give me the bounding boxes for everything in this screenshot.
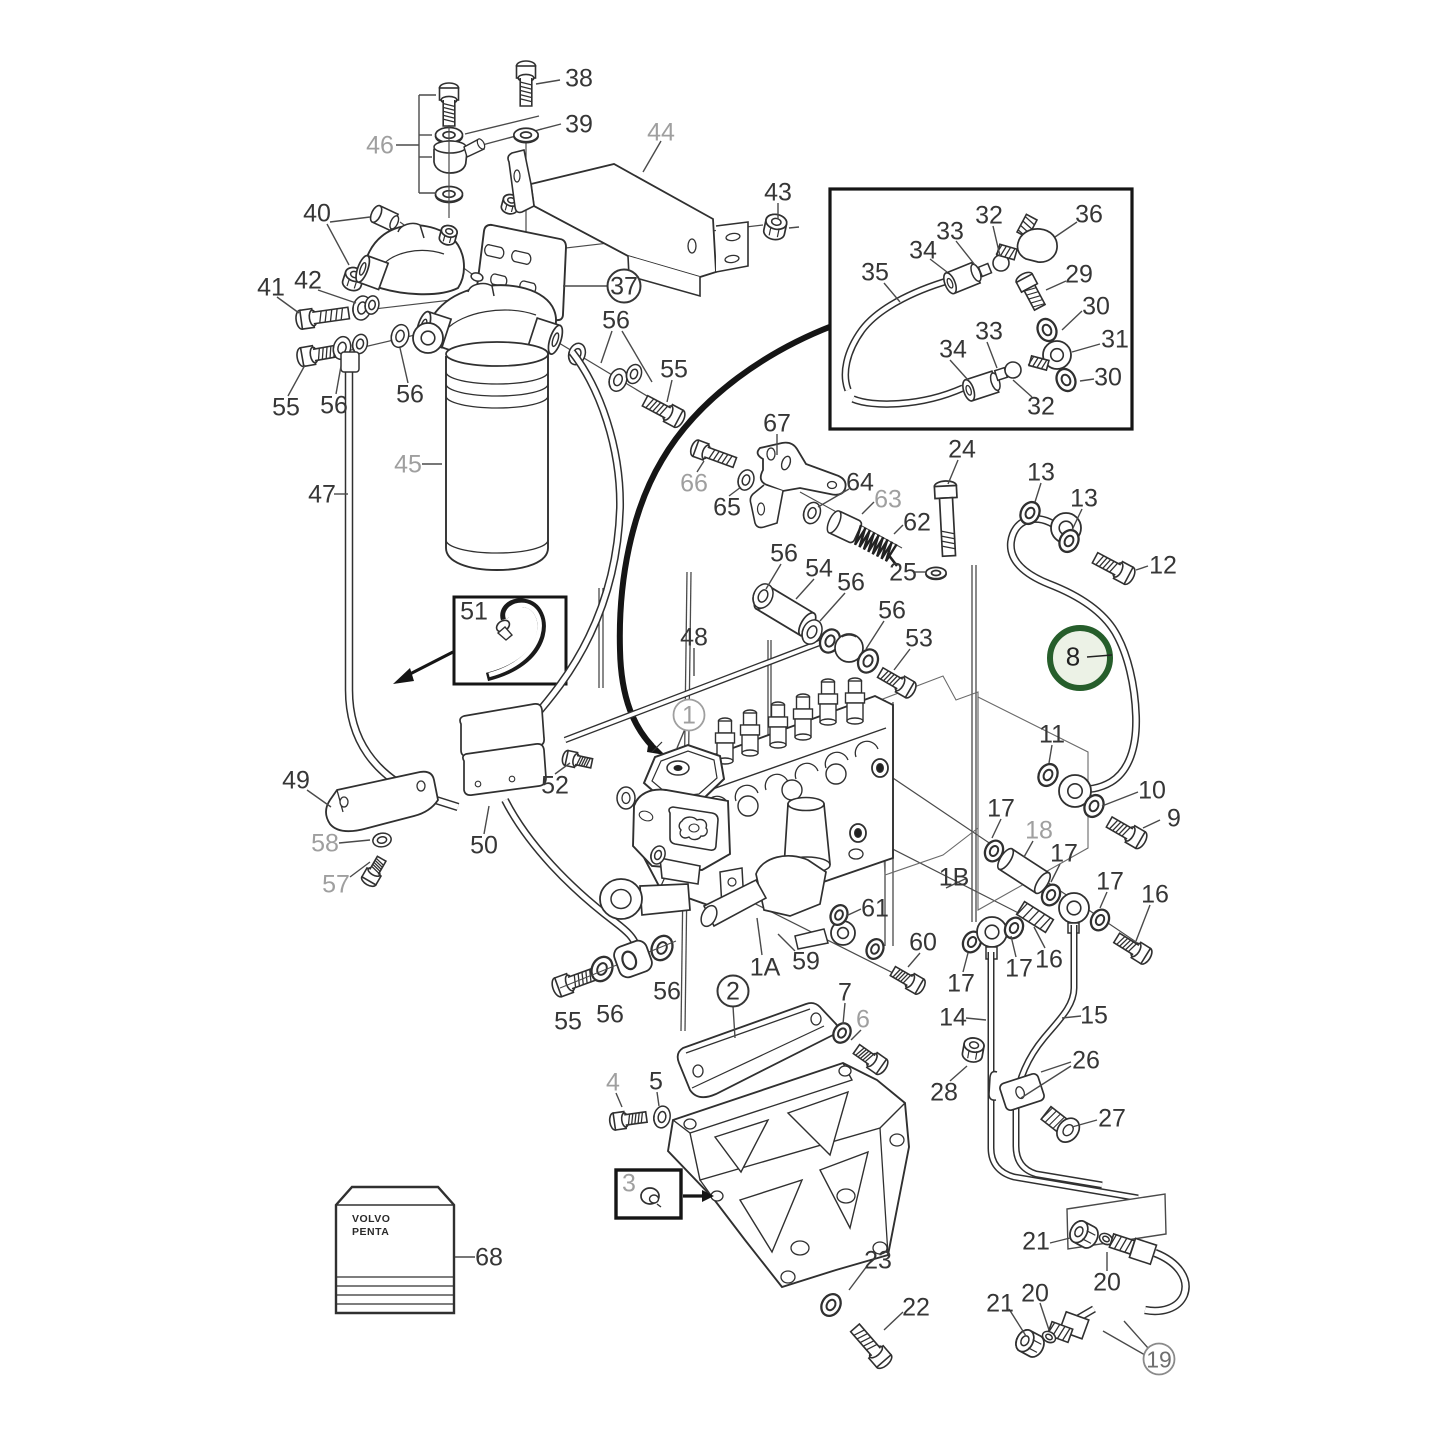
svg-text:56: 56 [837,569,865,597]
svg-text:34: 34 [939,336,967,364]
svg-text:28: 28 [930,1079,958,1107]
svg-text:14: 14 [939,1004,967,1032]
svg-text:56: 56 [596,1001,624,1029]
svg-text:41: 41 [257,274,285,302]
svg-text:56: 56 [770,540,798,568]
svg-text:2: 2 [726,978,740,1006]
svg-text:42: 42 [294,267,322,295]
svg-text:39: 39 [565,111,593,139]
svg-text:11: 11 [1039,721,1065,749]
svg-text:52: 52 [541,772,569,800]
svg-text:58: 58 [311,830,339,858]
svg-text:56: 56 [653,978,681,1006]
svg-text:59: 59 [792,948,820,976]
svg-text:21: 21 [1022,1228,1050,1256]
svg-text:1A: 1A [750,954,781,982]
svg-text:5: 5 [649,1068,663,1096]
svg-text:19: 19 [1146,1347,1172,1373]
svg-text:65: 65 [713,494,741,522]
svg-text:45: 45 [394,451,422,479]
svg-text:26: 26 [1072,1047,1100,1075]
svg-text:56: 56 [878,597,906,625]
svg-text:33: 33 [975,318,1003,346]
svg-text:55: 55 [660,356,688,384]
svg-text:44: 44 [647,119,675,147]
svg-text:55: 55 [554,1008,582,1036]
svg-text:VOLVO: VOLVO [352,1213,390,1225]
svg-text:17: 17 [1005,955,1033,983]
svg-text:29: 29 [1065,261,1093,289]
svg-text:55: 55 [272,394,300,422]
svg-text:24: 24 [948,436,976,464]
svg-text:64: 64 [846,469,874,497]
svg-text:51: 51 [460,598,488,626]
svg-text:67: 67 [763,410,791,438]
svg-text:20: 20 [1021,1280,1049,1308]
svg-text:18: 18 [1025,817,1053,845]
svg-text:57: 57 [322,871,350,899]
svg-text:10: 10 [1138,777,1166,805]
svg-text:40: 40 [303,200,331,228]
svg-text:48: 48 [680,624,708,652]
svg-text:66: 66 [680,470,708,498]
svg-text:20: 20 [1093,1269,1121,1297]
svg-text:43: 43 [764,179,792,207]
svg-text:PENTA: PENTA [352,1226,389,1238]
svg-text:56: 56 [602,307,630,335]
svg-text:8: 8 [1066,642,1080,672]
svg-text:31: 31 [1101,326,1129,354]
svg-text:17: 17 [1096,868,1124,896]
svg-text:17: 17 [947,970,975,998]
svg-text:16: 16 [1035,946,1063,974]
svg-text:46: 46 [366,132,394,160]
svg-text:27: 27 [1098,1105,1126,1133]
svg-text:61: 61 [861,895,889,923]
svg-text:1: 1 [682,702,696,730]
svg-text:30: 30 [1094,364,1122,392]
svg-text:37: 37 [610,273,638,301]
svg-text:34: 34 [909,237,937,265]
svg-text:38: 38 [565,65,593,93]
svg-text:17: 17 [1050,840,1078,868]
svg-text:50: 50 [470,832,498,860]
svg-text:47: 47 [308,481,336,509]
svg-text:30: 30 [1082,293,1110,321]
svg-text:6: 6 [856,1006,870,1034]
svg-text:62: 62 [903,509,931,537]
svg-text:23: 23 [864,1247,892,1275]
svg-text:4: 4 [606,1069,620,1097]
svg-text:35: 35 [861,259,889,287]
svg-text:22: 22 [902,1294,930,1322]
svg-text:49: 49 [282,767,310,795]
svg-text:21: 21 [986,1290,1014,1318]
svg-text:9: 9 [1167,805,1181,833]
svg-text:12: 12 [1149,552,1177,580]
svg-text:7: 7 [838,979,852,1007]
svg-text:25: 25 [889,559,917,587]
svg-text:13: 13 [1070,485,1098,513]
svg-text:33: 33 [936,218,964,246]
svg-text:13: 13 [1027,459,1055,487]
svg-text:56: 56 [320,392,348,420]
svg-text:32: 32 [975,202,1003,230]
svg-text:68: 68 [475,1244,503,1272]
svg-text:1B: 1B [939,864,970,892]
svg-text:15: 15 [1080,1002,1108,1030]
svg-text:32: 32 [1027,393,1055,421]
svg-text:60: 60 [909,929,937,957]
svg-text:3: 3 [622,1170,636,1198]
svg-text:36: 36 [1075,201,1103,229]
svg-text:54: 54 [805,555,833,583]
svg-text:53: 53 [905,625,933,653]
svg-text:56: 56 [396,381,424,409]
svg-text:16: 16 [1141,881,1169,909]
svg-text:17: 17 [987,795,1015,823]
svg-text:63: 63 [874,486,902,514]
